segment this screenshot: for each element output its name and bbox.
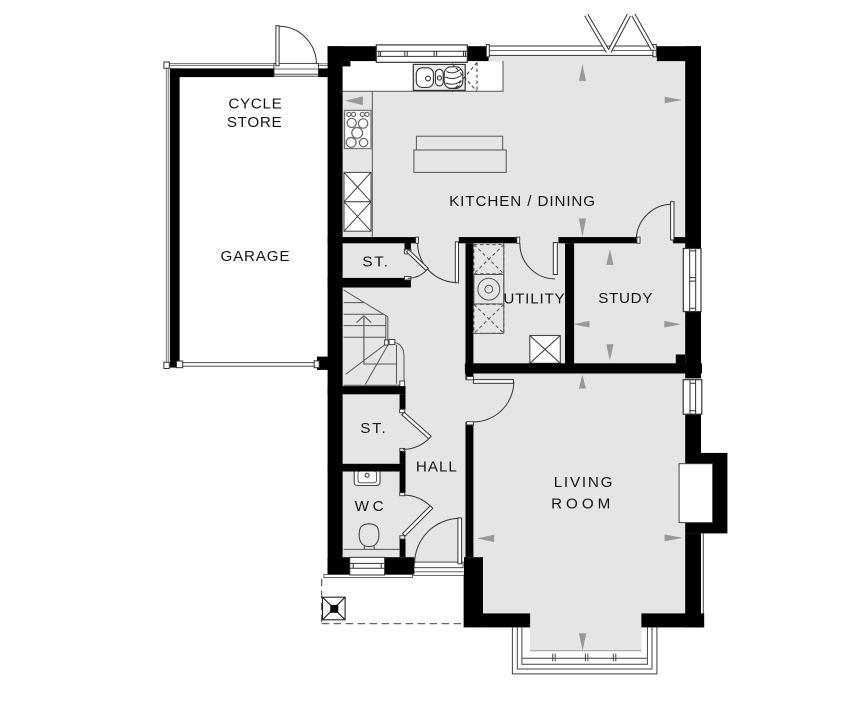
svg-text:GARAGE: GARAGE <box>221 248 291 265</box>
svg-text:ROOM: ROOM <box>551 496 614 513</box>
svg-text:ST.: ST. <box>360 420 387 437</box>
svg-text:HALL: HALL <box>416 459 458 476</box>
svg-text:STORE: STORE <box>227 114 283 131</box>
svg-text:WC: WC <box>355 498 388 515</box>
svg-text:LIVING: LIVING <box>554 474 615 491</box>
svg-text:KITCHEN / DINING: KITCHEN / DINING <box>449 193 596 210</box>
svg-text:UTILITY: UTILITY <box>503 291 565 308</box>
svg-text:STUDY: STUDY <box>598 290 653 307</box>
svg-text:CYCLE: CYCLE <box>228 96 282 113</box>
svg-text:ST.: ST. <box>362 254 389 271</box>
